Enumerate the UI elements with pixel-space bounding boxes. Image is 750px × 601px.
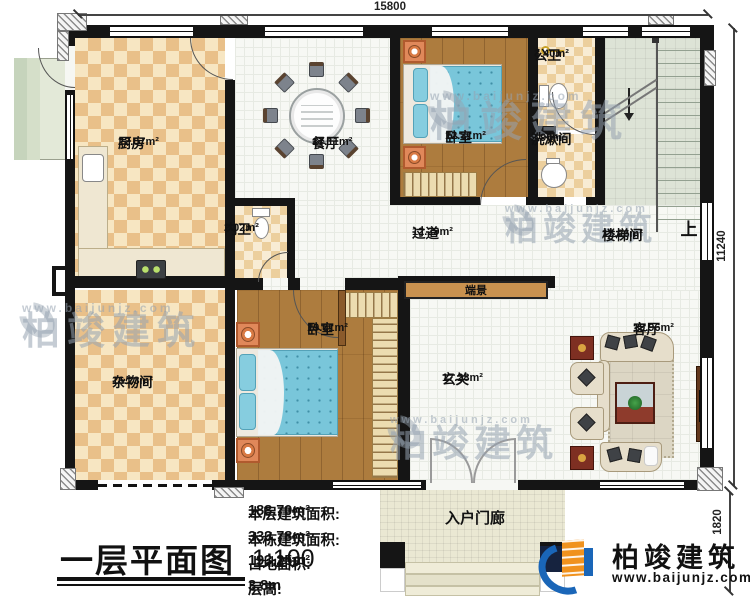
washbasin-icon (541, 162, 567, 188)
chair (309, 62, 324, 77)
chair (355, 108, 370, 123)
room-area: 17.28m² (442, 372, 483, 384)
window (600, 480, 684, 490)
porch-label: 入户门廊 (405, 511, 545, 528)
dining-table-setting (301, 105, 333, 127)
hatch-mark (704, 50, 716, 86)
side-table (570, 446, 594, 470)
hatch-mark (57, 13, 87, 31)
brand-url: www.baijunjz.com (612, 570, 750, 585)
closet (372, 318, 398, 478)
brand-logo-building (562, 539, 584, 577)
pillow (413, 68, 428, 102)
pillow (413, 104, 428, 138)
dashed-opening (98, 480, 212, 490)
pillow (239, 393, 256, 430)
brand-logo-tower (584, 548, 593, 576)
room-area: 12.31m² (445, 130, 486, 142)
room-area: 16.23m² (112, 375, 153, 387)
wall (225, 198, 295, 206)
window (110, 25, 193, 38)
nightstand (403, 40, 426, 63)
stove-icon (136, 260, 166, 279)
room-area: 22.07m² (118, 136, 159, 148)
window (65, 95, 75, 159)
wall (288, 278, 300, 290)
toilet-tank (252, 208, 270, 217)
wall (595, 25, 605, 205)
room-area: 3.40m² (534, 48, 569, 60)
room-area: 15.26m² (602, 228, 643, 240)
door-leaf (338, 290, 346, 346)
porch-step (405, 574, 540, 586)
chair (263, 108, 278, 123)
window (265, 25, 363, 38)
room-area: 12.29m² (412, 226, 453, 238)
closet (340, 292, 398, 318)
chair (309, 154, 324, 169)
wall (528, 197, 564, 205)
wall (225, 80, 235, 278)
title-underline (57, 584, 245, 586)
wall (287, 206, 295, 278)
sofa-pillow (627, 448, 642, 463)
dimension-top: 15800 (345, 1, 435, 13)
nightstand (236, 438, 260, 463)
washbasin-tap (546, 158, 560, 164)
stair-direction-line (628, 88, 630, 114)
console-table: 端景 (404, 281, 548, 299)
closet (403, 172, 477, 197)
porch-pillar-base (380, 568, 405, 592)
room-area: 2.90m² (531, 132, 566, 144)
room-area: 2.02m² (224, 222, 259, 234)
window (700, 203, 714, 260)
window (432, 25, 508, 38)
nightstand (403, 146, 426, 169)
toilet-tank (539, 85, 549, 107)
wall (390, 197, 480, 205)
porch-step (405, 586, 540, 596)
hatch-mark (220, 14, 248, 25)
side-porch-strip (14, 58, 27, 160)
dimension-right: 11240 (716, 224, 728, 268)
window (333, 480, 421, 490)
nightstand (236, 322, 260, 347)
sofa-throw (644, 446, 658, 466)
porch-step (405, 562, 540, 574)
pillow (239, 354, 256, 391)
wall (390, 25, 400, 205)
room-area: 17.11m² (312, 136, 352, 148)
stairs (656, 38, 700, 232)
console-label: 端景 (465, 282, 487, 298)
window (642, 25, 690, 38)
wall (398, 288, 410, 480)
porch-pillar (380, 542, 405, 568)
bed-sheet (258, 350, 284, 435)
stair-arrow-icon (624, 113, 634, 121)
dimension-line (78, 14, 708, 16)
side-table (570, 336, 594, 360)
room-area: 19.01m² (307, 322, 348, 334)
title-underline (57, 577, 245, 581)
dimension-line (733, 28, 735, 486)
plant-icon (628, 396, 642, 410)
floor-plan-canvas: 端景 厨房 22.07m² 餐厅 17.11m² 卧室 12.31m² 公卫 3… (0, 0, 750, 601)
side-porch-strip (27, 58, 40, 160)
sink-icon (82, 154, 104, 182)
watermark-logo-icon (12, 295, 61, 344)
hatch-mark (697, 467, 723, 491)
window (583, 25, 628, 38)
wall (225, 290, 235, 480)
wall (345, 278, 398, 290)
plan-title: 一层平面图 (60, 534, 235, 582)
stair-up-label: 上 (676, 220, 702, 239)
room-area: 19.96m² (633, 322, 674, 334)
hatch-mark (648, 14, 674, 25)
hatch-mark (214, 487, 244, 498)
hatch-mark (60, 468, 76, 490)
window (700, 358, 714, 448)
